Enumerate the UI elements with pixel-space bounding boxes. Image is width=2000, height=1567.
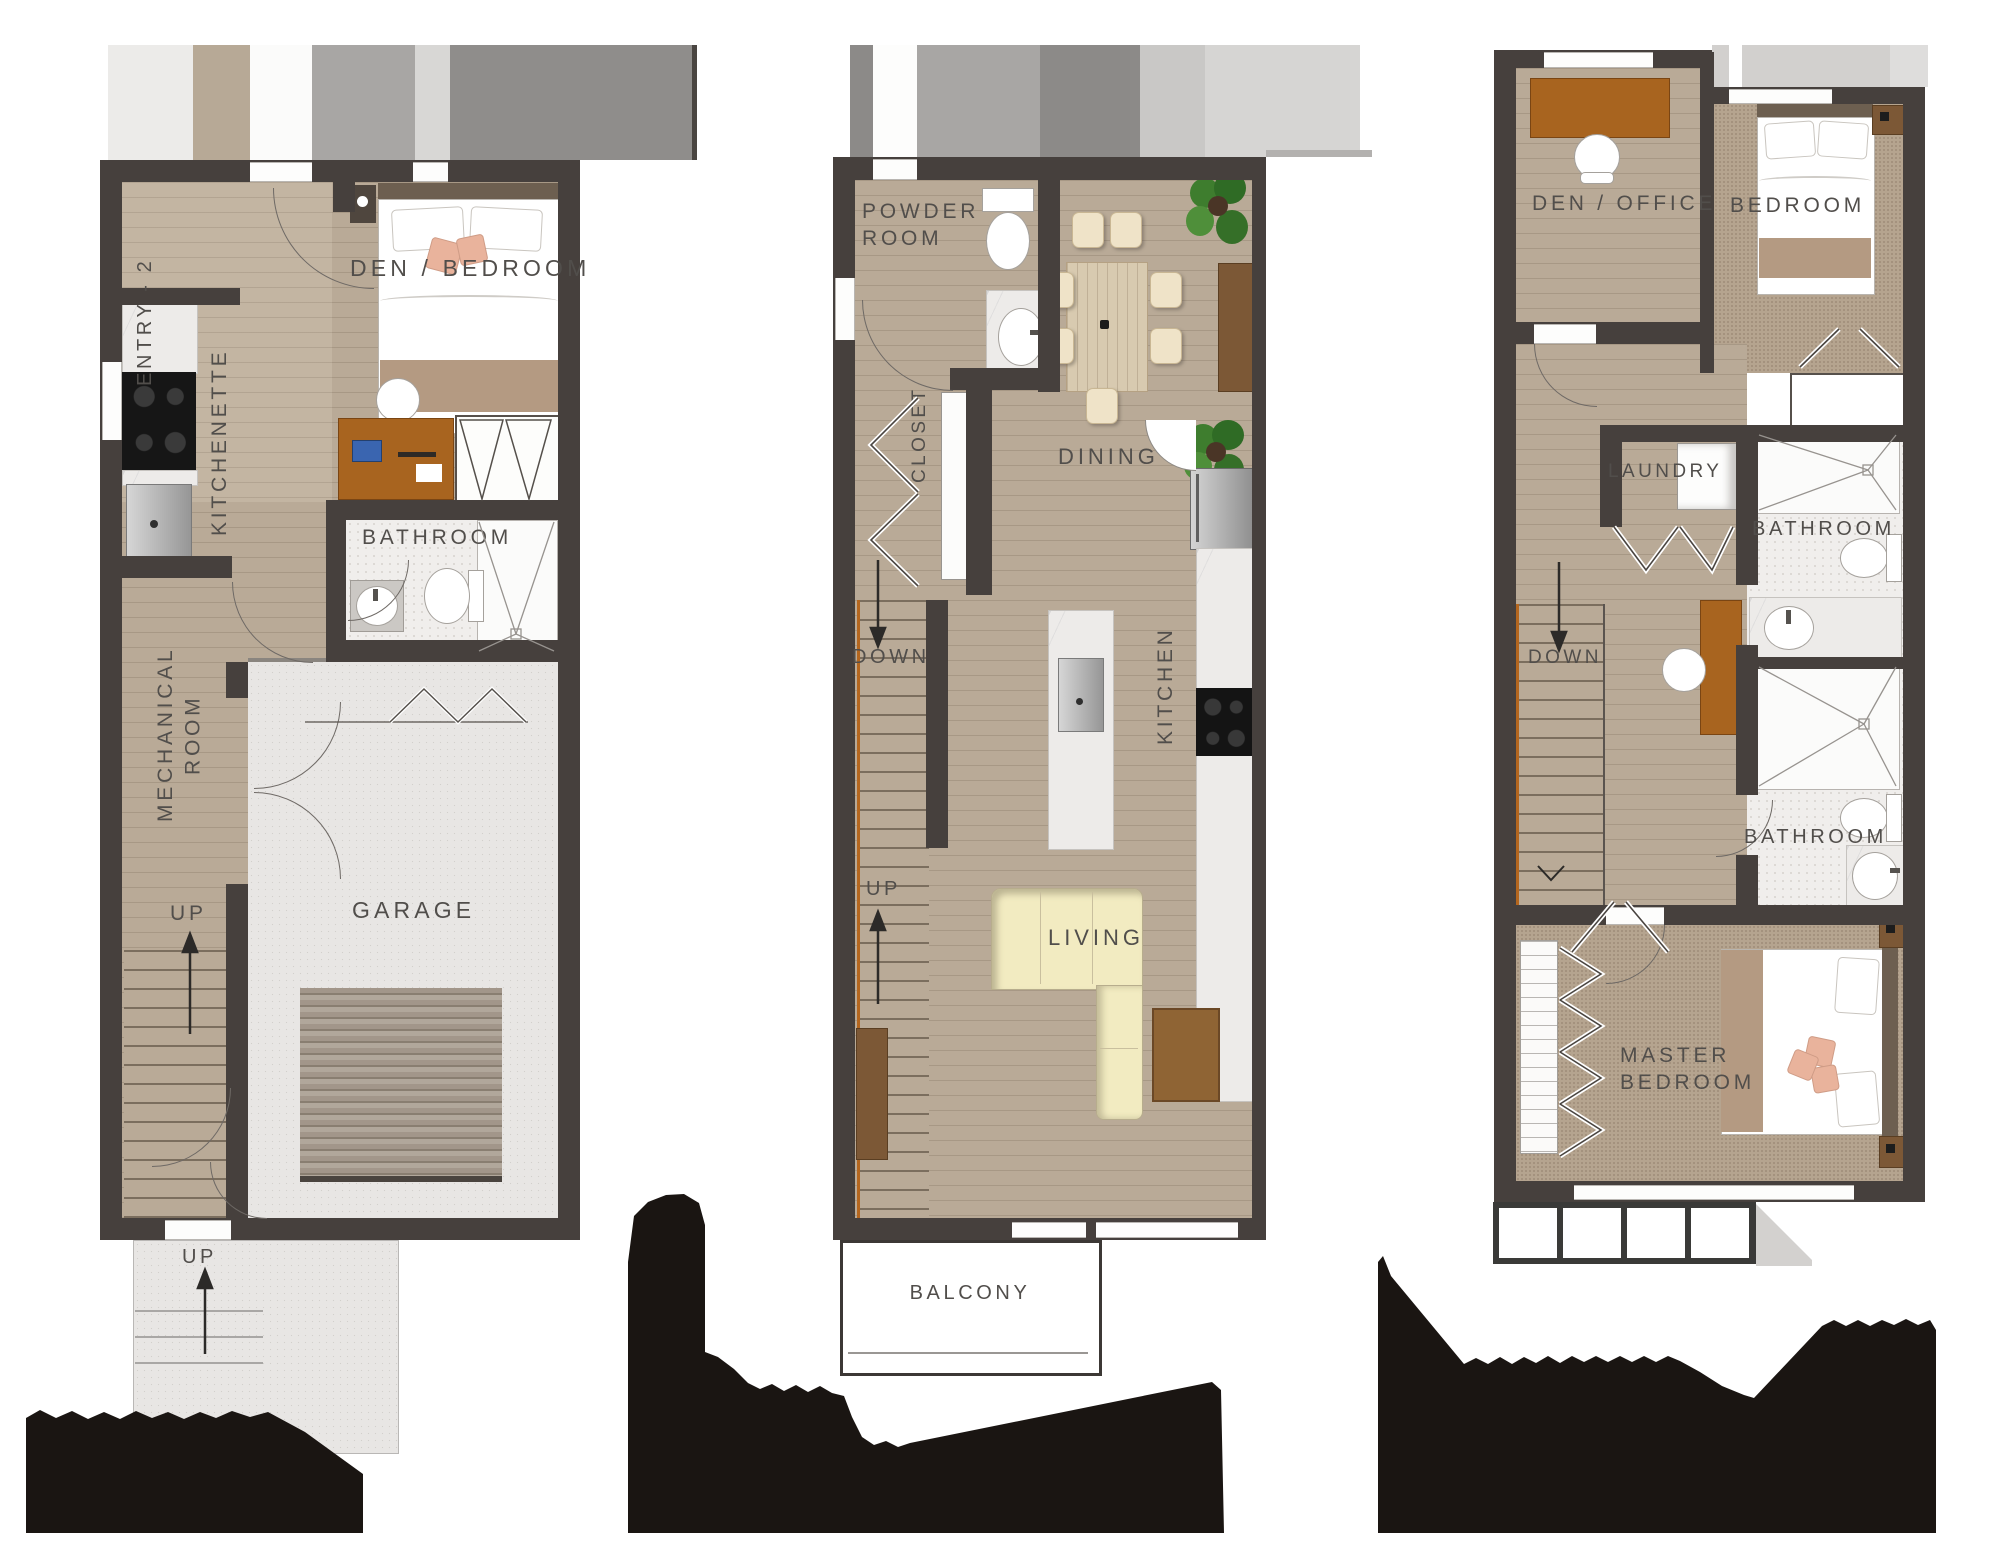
deck-shadow xyxy=(1756,1204,1812,1266)
closet-doors-main xyxy=(871,398,918,586)
redaction-blobs xyxy=(26,1194,1936,1533)
redaction-blob-upper xyxy=(1378,1256,1936,1533)
laundry-doors xyxy=(1614,527,1733,570)
redaction-blob-main xyxy=(628,1194,1224,1533)
stair-arrows xyxy=(183,560,1566,1354)
shower-lines xyxy=(479,435,1896,786)
bedroom-closet-doors xyxy=(1800,329,1899,367)
wardrobe-doors xyxy=(460,420,551,499)
garage-door-fold xyxy=(305,689,528,722)
master-closet-doors xyxy=(1560,948,1601,1156)
redaction-blob-basement xyxy=(26,1410,363,1533)
floor-plan-sheet: ENTRY - 2 DEN / BEDROOM KITCHENETTE BATH… xyxy=(0,0,2000,1567)
master-door-leaves xyxy=(1572,902,1668,952)
overlay xyxy=(0,0,2000,1567)
